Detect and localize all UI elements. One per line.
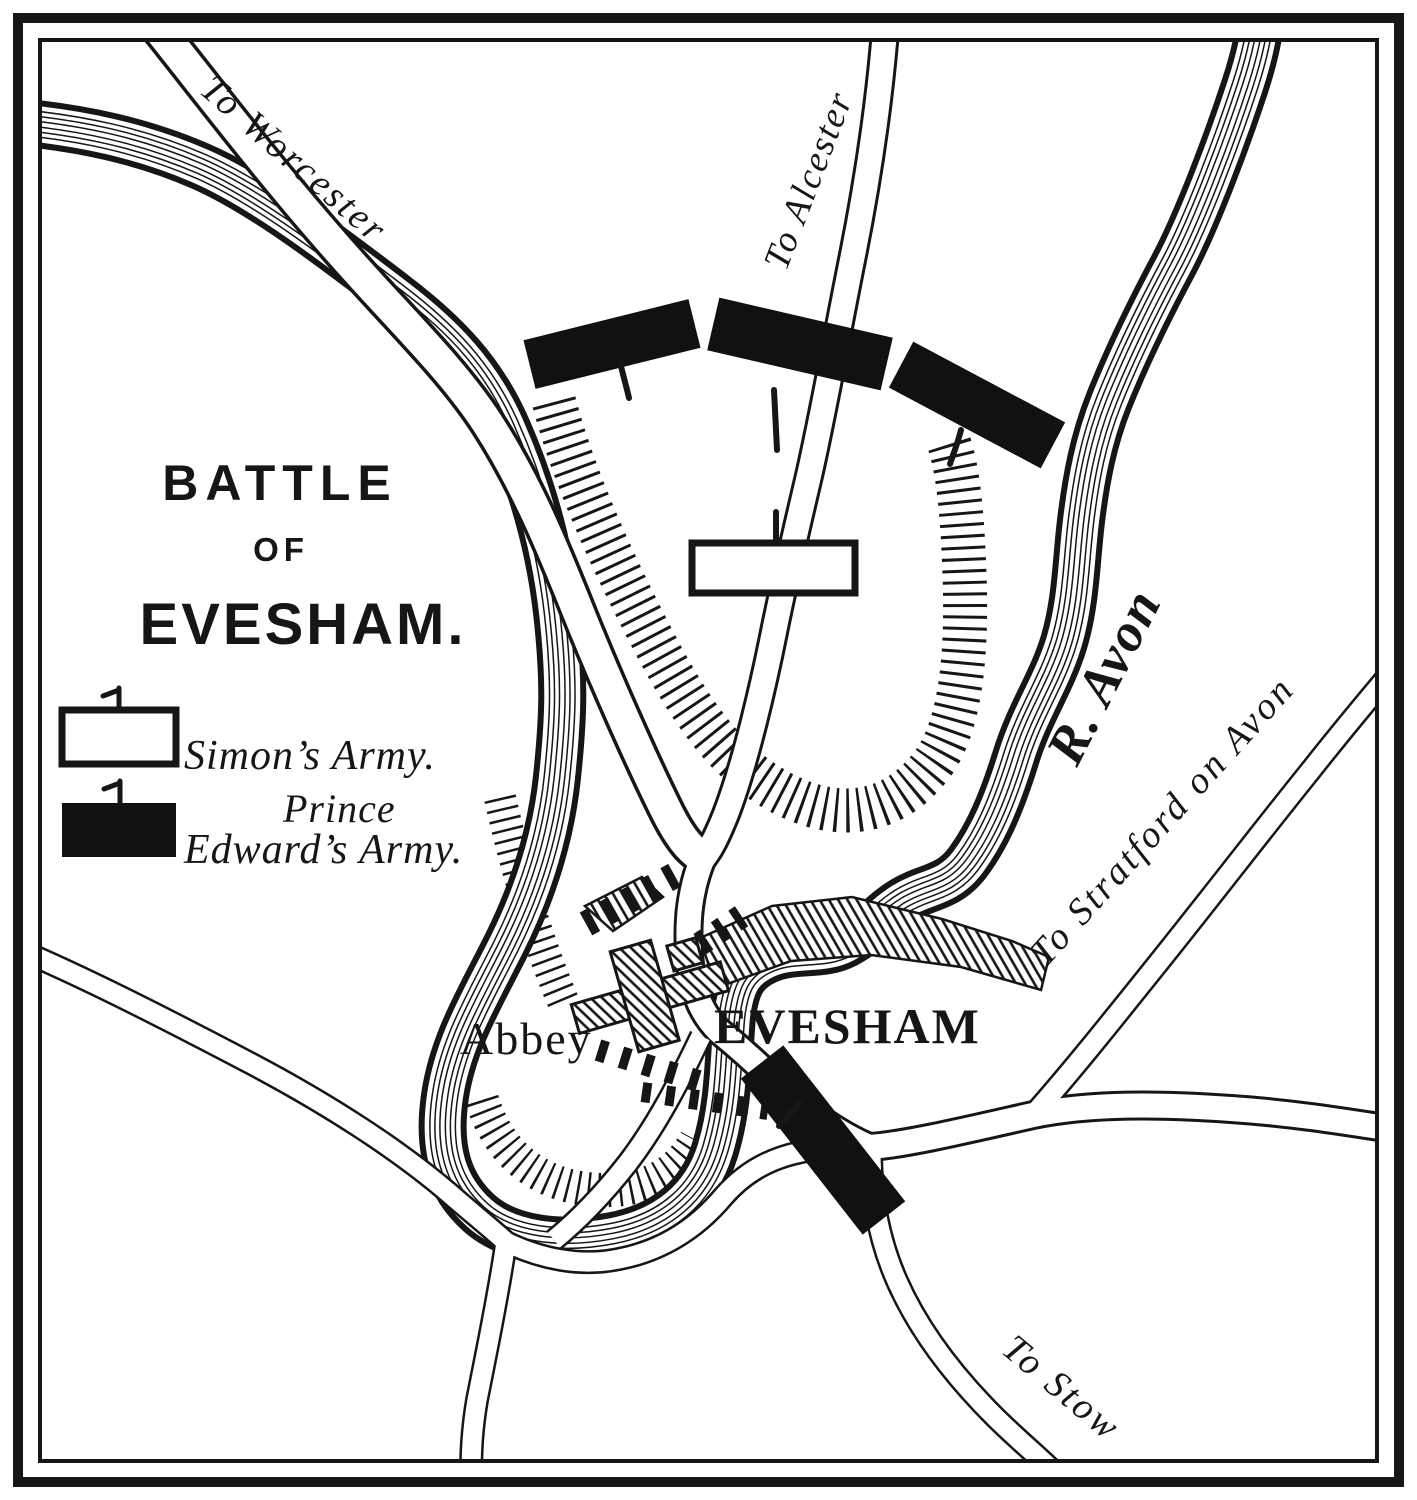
map-title-line2: OF (253, 531, 309, 568)
simon-army-marker (692, 543, 855, 593)
battle-map: Simon’s Army. Prince Edward’s Army. BATT… (0, 0, 1417, 1500)
place-label-abbey: Abbey (460, 1013, 593, 1064)
legend-simon-swatch (62, 710, 176, 764)
flagstaff (774, 390, 777, 450)
place-label-evesham: EVESHAM (714, 998, 981, 1054)
legend-edward-label-line1: Prince (282, 786, 396, 831)
legend-edward-label-line2: Edward’s Army. (183, 827, 463, 873)
battle-of-evesham-map-page: Simon’s Army. Prince Edward’s Army. BATT… (0, 0, 1417, 1500)
legend-edward-swatch (62, 803, 176, 857)
map-title-line1: BATTLE (162, 455, 397, 511)
map-title-line3: EVESHAM. (140, 592, 467, 657)
legend-simon-label: Simon’s Army. (184, 733, 436, 779)
